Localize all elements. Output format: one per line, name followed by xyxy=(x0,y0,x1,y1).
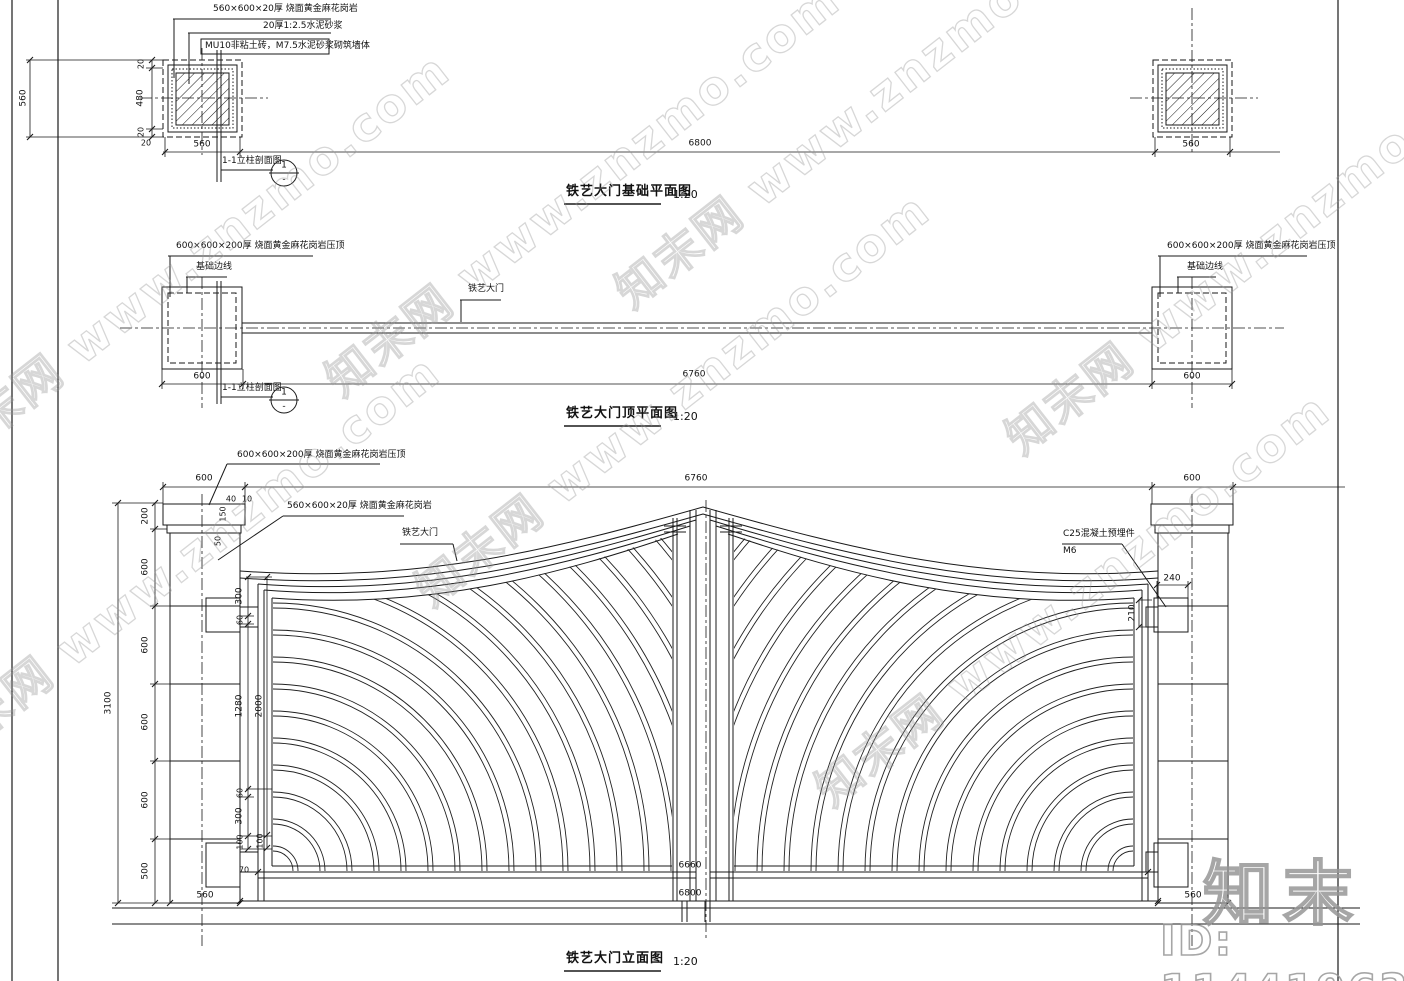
dim-label: 100 xyxy=(235,834,246,849)
dim-label: 600 xyxy=(141,636,152,653)
dim-label: 560 xyxy=(196,891,213,902)
note-brick-wall: MU10非粘土砖，M7.5水泥砂浆砌筑墙体 xyxy=(205,41,370,52)
note-coping: 600×600×200厚 烧面黄金麻花岗岩压顶 xyxy=(237,450,405,461)
note-embed-bolt: M6 xyxy=(1063,546,1077,557)
drawing-scale: 1:20 xyxy=(673,411,698,422)
note-foundation-edge: 基础边线 xyxy=(196,262,232,273)
left-leaf-fan-bars xyxy=(0,333,811,981)
elevation-linework xyxy=(112,464,1360,971)
dim-label: 600 xyxy=(141,558,152,575)
dim-label: 60 xyxy=(235,615,246,625)
dim-label: 6800 xyxy=(679,889,702,900)
drawing-id: ID: 1144196357 xyxy=(1160,916,1404,981)
dim-label: 300 xyxy=(235,807,246,824)
dim-label: 2000 xyxy=(255,695,266,718)
section-label: 1-1立柱剖面图 xyxy=(222,383,282,394)
section-sheet: - xyxy=(282,402,285,413)
sheet-frame xyxy=(12,0,1338,981)
note-coping: 600×600×200厚 烧面黄金麻花岗岩压顶 xyxy=(176,241,344,252)
dim-label: 20 xyxy=(136,127,147,137)
dim-label: 6800 xyxy=(689,139,712,150)
top-plan-title: 铁艺大门顶平面图 xyxy=(566,408,678,419)
cad-sheet: 560×600×20厚 烧面黄金麻花岗岩 20厚1:2.5水泥砂浆 MU10非粘… xyxy=(0,0,1404,981)
note-granite-cap: 560×600×20厚 烧面黄金麻花岗岩 xyxy=(213,4,358,15)
dim-label: 20 xyxy=(141,138,151,149)
dim-label: 240 xyxy=(1163,574,1180,585)
dim-label: 40 xyxy=(226,494,236,505)
dim-label: 6660 xyxy=(679,861,702,872)
dim-label: 6760 xyxy=(683,370,706,381)
note-gate: 铁艺大门 xyxy=(402,528,438,539)
drawing-scale: 1:20 xyxy=(673,189,698,200)
section-number: 1 xyxy=(281,388,287,399)
dim-label: 10 xyxy=(242,494,252,505)
foundation-plan-linework xyxy=(26,8,1280,204)
dim-label: 560 xyxy=(19,89,30,106)
note-coping: 600×600×200厚 烧面黄金麻花岗岩压顶 xyxy=(1167,241,1335,252)
dim-label: 210 xyxy=(1128,604,1139,621)
dim-label: 500 xyxy=(141,862,152,879)
dim-label: 600 xyxy=(141,791,152,808)
note-granite-cap: 560×600×20厚 烧面黄金麻花岗岩 xyxy=(287,501,432,512)
note-embed-concrete: C25混凝土预埋件 xyxy=(1063,529,1135,540)
dim-label: 6760 xyxy=(685,474,708,485)
note-mortar: 20厚1:2.5水泥砂浆 xyxy=(263,21,343,32)
dim-label: 600 xyxy=(1183,474,1200,485)
section-sheet: - xyxy=(282,175,285,186)
dim-label: 20 xyxy=(136,59,147,69)
dim-label: 100 xyxy=(255,833,266,848)
top-plan-linework xyxy=(120,256,1307,426)
note-foundation-edge: 基础边线 xyxy=(1187,262,1223,273)
dim-label: 600 xyxy=(141,713,152,730)
dim-label: 3100 xyxy=(104,692,115,715)
dim-label: 600 xyxy=(195,474,212,485)
elevation-title: 铁艺大门立面图 xyxy=(566,953,664,964)
section-label: 1-1立柱剖面图 xyxy=(222,156,282,167)
dim-label: 560 xyxy=(193,140,210,151)
dim-label: 1280 xyxy=(235,695,246,718)
dim-label: 600 xyxy=(1183,372,1200,383)
dim-label: 560 xyxy=(1182,140,1199,151)
dim-label: 70 xyxy=(239,865,249,876)
dim-label: 560 xyxy=(1184,891,1201,902)
dim-label: 300 xyxy=(235,587,246,604)
dim-label: 150 xyxy=(218,506,229,521)
section-number: 1 xyxy=(281,161,287,172)
dim-label: 60 xyxy=(235,788,246,798)
dim-label: 50 xyxy=(213,536,224,546)
dim-label: 480 xyxy=(136,89,147,106)
dim-label: 200 xyxy=(141,507,152,524)
drawing-scale: 1:20 xyxy=(673,956,698,967)
dim-label: 600 xyxy=(193,372,210,383)
note-gate: 铁艺大门 xyxy=(468,284,504,295)
